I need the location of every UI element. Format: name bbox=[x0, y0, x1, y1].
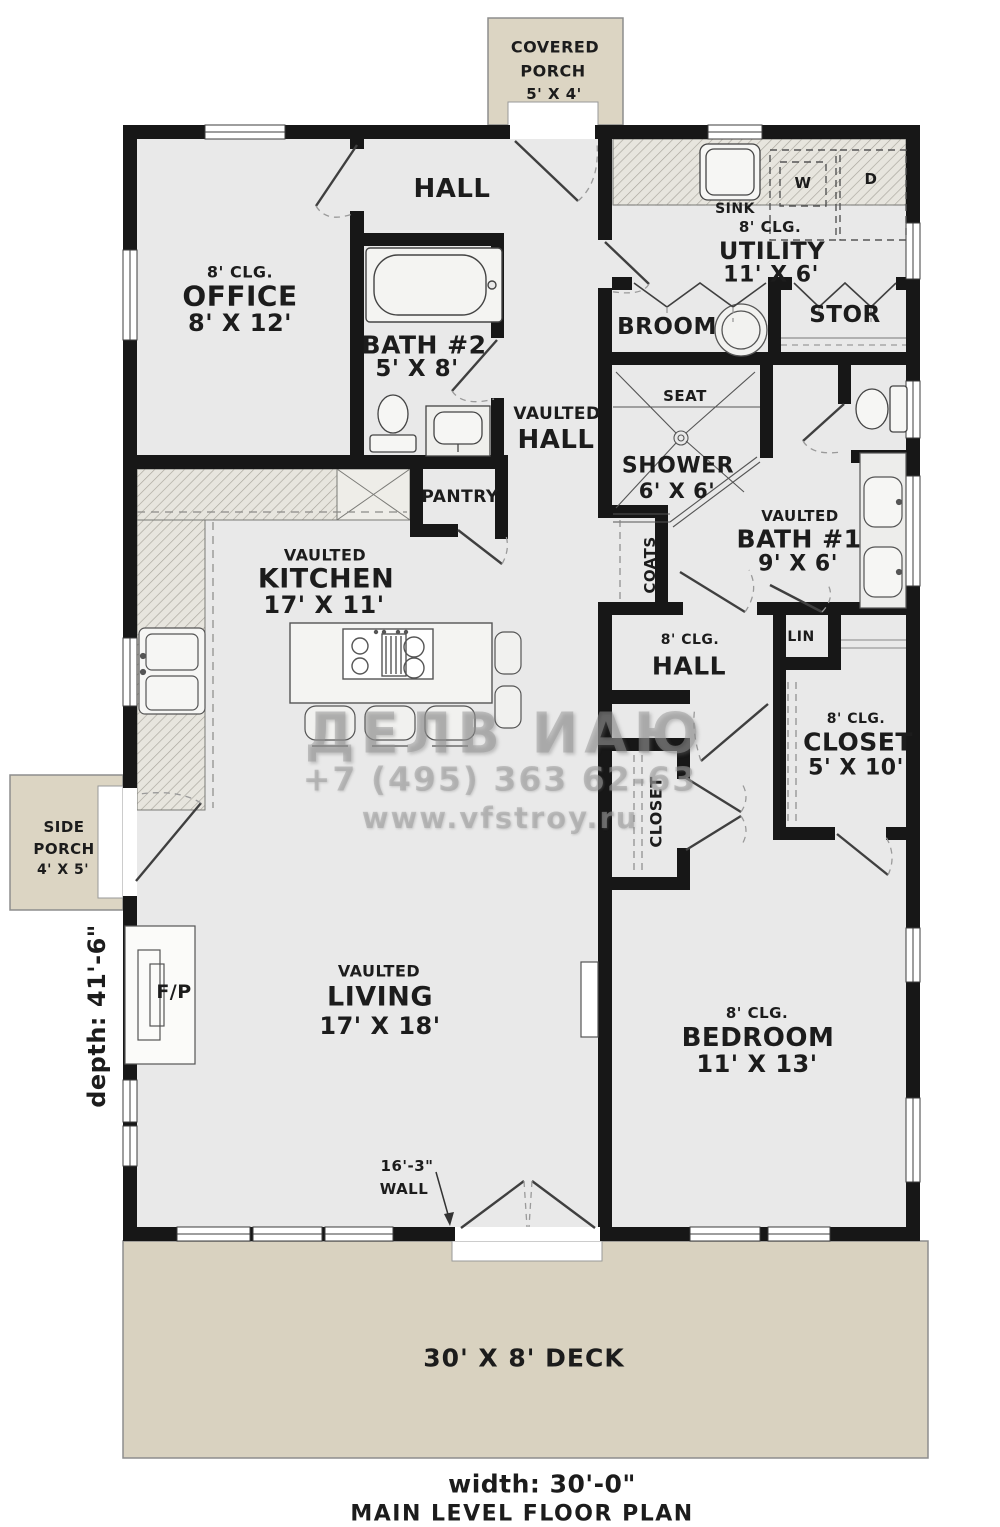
closet-main-clg: 8' CLG. bbox=[827, 711, 885, 727]
kitchen-label: KITCHEN bbox=[258, 564, 394, 595]
closet-main-dims: 5' X 10' bbox=[808, 756, 904, 781]
utility-label: UTILITY bbox=[719, 237, 825, 265]
side-porch-label-line1: SIDE bbox=[43, 818, 84, 836]
kitchen-clg: VAULTED bbox=[284, 546, 366, 565]
broom-label: BROOM bbox=[617, 314, 717, 340]
office-label: OFFICE bbox=[182, 280, 297, 313]
covered-porch-label-line2: PORCH bbox=[520, 62, 585, 81]
kitchen-sink-icon bbox=[139, 628, 205, 714]
hall-mid-clg: 8' CLG. bbox=[661, 632, 719, 648]
bathtub-icon bbox=[366, 248, 502, 322]
utility-sink-icon bbox=[700, 144, 760, 200]
wall-note-line2: WALL bbox=[380, 1180, 429, 1198]
vanity-icon-bath2 bbox=[426, 406, 490, 456]
watermark-website: www.vfstroy.ru bbox=[362, 801, 639, 835]
hall-mid-label: HALL bbox=[652, 652, 726, 681]
bedroom-clg: 8' CLG. bbox=[726, 1004, 788, 1022]
seat-label: SEAT bbox=[663, 387, 707, 405]
watermark-logo: ДЕЛВ ИАЮ bbox=[305, 702, 706, 767]
coats-label: COATS bbox=[641, 536, 659, 593]
floor-plan-page: COVERED PORCH 5' X 4' HALL 8' CLG. OFFIC… bbox=[0, 0, 1000, 1527]
living-label: LIVING bbox=[327, 982, 433, 1013]
double-vanity-icon bbox=[860, 453, 906, 608]
bath1-clg: VAULTED bbox=[761, 507, 838, 525]
bath1-label: BATH #1 bbox=[737, 525, 862, 554]
water-heater-icon bbox=[715, 304, 767, 356]
dryer-label: D bbox=[865, 170, 878, 188]
living-clg: VAULTED bbox=[338, 962, 420, 981]
living-dims: 17' X 18' bbox=[319, 1012, 440, 1040]
bedroom-label: BEDROOM bbox=[682, 1023, 835, 1053]
watermark-phone: +7 (495) 363 62-63 bbox=[303, 760, 698, 799]
plan-title: MAIN LEVEL FLOOR PLAN bbox=[350, 1502, 693, 1527]
deck-step bbox=[452, 1241, 602, 1261]
kitchen-island bbox=[290, 623, 492, 703]
depth-dimension-label: depth: 41'-6" bbox=[83, 924, 111, 1108]
closet-main-label: CLOSET bbox=[803, 728, 913, 757]
width-dimension-label: width: 30'-0" bbox=[448, 1470, 636, 1499]
shower-dims: 6' X 6' bbox=[639, 479, 715, 503]
bath2-dims: 5' X 8' bbox=[375, 356, 458, 382]
side-porch-dims: 4' X 5' bbox=[37, 862, 89, 878]
media-niche bbox=[581, 962, 598, 1037]
covered-porch-dims: 5' X 4' bbox=[526, 85, 582, 103]
deck-label: 30' X 8' DECK bbox=[423, 1344, 624, 1373]
lin-label: LIN bbox=[787, 629, 814, 645]
fireplace-label: F/P bbox=[156, 981, 191, 1003]
wall-note-line1: 16'-3" bbox=[381, 1157, 434, 1175]
vaulted-hall-label-line1: VAULTED bbox=[513, 404, 600, 424]
shower-label: SHOWER bbox=[622, 454, 734, 479]
pantry-label: PANTRY bbox=[421, 487, 498, 507]
bath1-dims: 9' X 6' bbox=[758, 552, 838, 577]
kitchen-dims: 17' X 11' bbox=[263, 591, 384, 619]
hall-top-label: HALL bbox=[413, 174, 490, 204]
utility-clg: 8' CLG. bbox=[739, 218, 801, 236]
office-dims: 8' X 12' bbox=[188, 309, 292, 337]
stor-label: STOR bbox=[809, 302, 881, 328]
cooktop-icon bbox=[343, 629, 433, 679]
covered-porch-label-line1: COVERED bbox=[511, 38, 599, 57]
utility-dims: 11' X 6' bbox=[723, 263, 819, 288]
bedroom-dims: 11' X 13' bbox=[696, 1050, 817, 1078]
washer-label: W bbox=[794, 174, 811, 192]
side-porch-label-line2: PORCH bbox=[33, 840, 94, 858]
vaulted-hall-label-line2: HALL bbox=[517, 425, 594, 455]
toilet-icon-bath1 bbox=[856, 386, 907, 432]
sink-label: SINK bbox=[715, 201, 755, 217]
